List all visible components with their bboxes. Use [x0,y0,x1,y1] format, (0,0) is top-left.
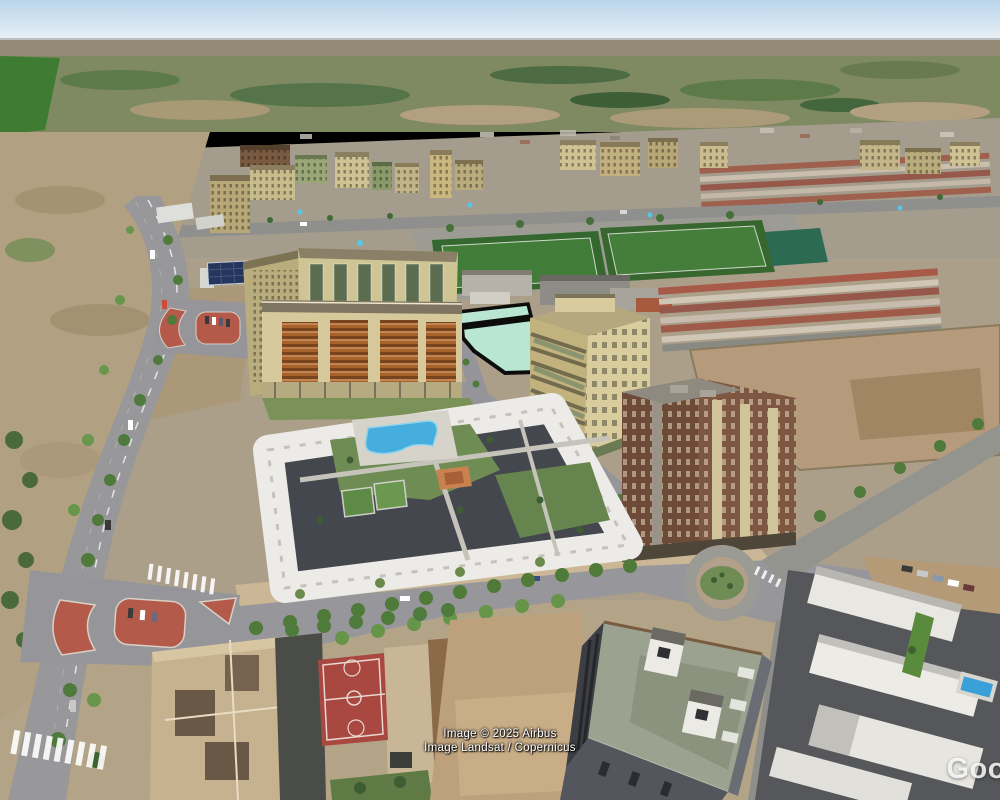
school-yard-asphalt [275,633,326,800]
map-attribution: Image © 2025 Airbus Image Landsat / Cope… [424,727,576,755]
satellite-3d-scene [0,0,1000,800]
distant-pool [898,206,903,211]
distant-pool [648,213,653,218]
earth-viewport[interactable]: Image © 2025 Airbus Image Landsat / Cope… [0,0,1000,800]
gray-tower-block [560,622,772,800]
google-watermark: Goo [947,753,1000,786]
attribution-line1: Image © 2025 Airbus [424,727,576,741]
sky [0,0,1000,38]
small-court [765,228,828,266]
basketball-court [318,653,388,746]
attribution-line2: Image Landsat / Copernicus [424,741,576,755]
far-terrain [0,40,1000,58]
distant-pool [468,203,473,208]
white-residential-complex [268,408,628,588]
countryside-band [0,56,1000,135]
distant-pool [298,210,303,215]
cream-apartment-complex [243,248,480,420]
distant-pool [357,240,363,246]
brown-tower [622,378,796,562]
